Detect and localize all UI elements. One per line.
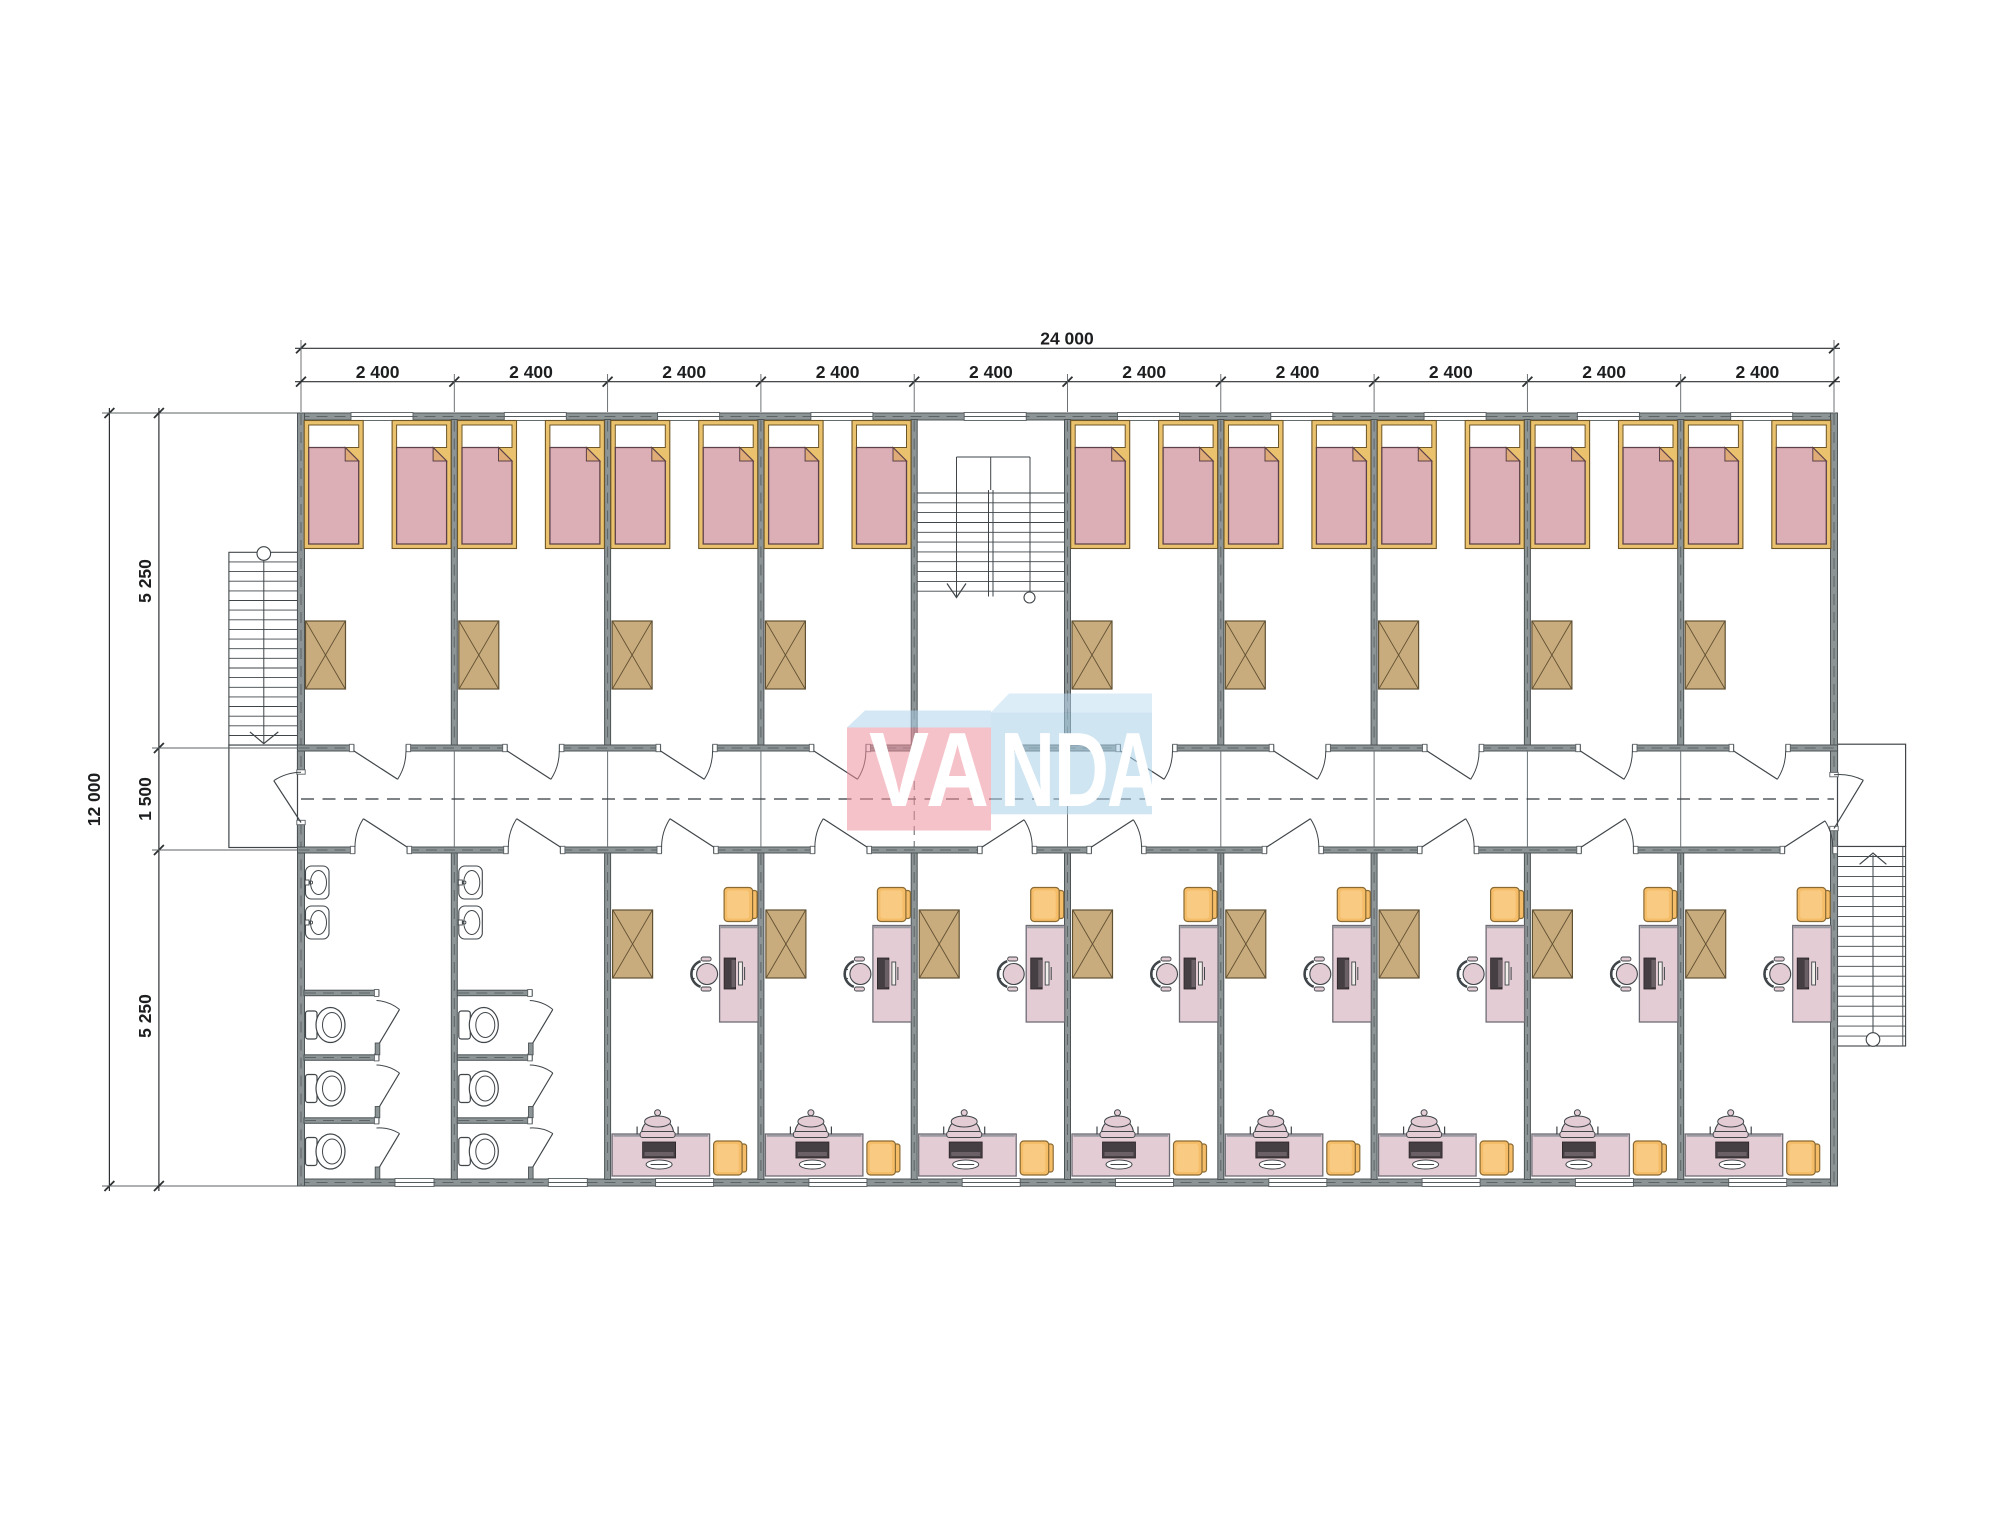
svg-text:2 400: 2 400 [1429, 362, 1473, 382]
svg-text:2 400: 2 400 [1276, 362, 1320, 382]
svg-text:D: D [1054, 711, 1109, 829]
svg-text:2 400: 2 400 [509, 362, 553, 382]
svg-text:2 400: 2 400 [1582, 362, 1626, 382]
svg-text:N: N [1000, 711, 1055, 829]
svg-text:5 250: 5 250 [135, 994, 155, 1038]
svg-text:5 250: 5 250 [135, 559, 155, 603]
svg-text:12 000: 12 000 [84, 772, 104, 826]
svg-text:24 000: 24 000 [1040, 329, 1094, 349]
svg-text:A: A [1107, 711, 1159, 829]
svg-text:2 400: 2 400 [1122, 362, 1166, 382]
svg-text:2 400: 2 400 [1736, 362, 1780, 382]
svg-text:2 400: 2 400 [662, 362, 706, 382]
svg-text:2 400: 2 400 [816, 362, 860, 382]
svg-text:2 400: 2 400 [356, 362, 400, 382]
svg-text:1 500: 1 500 [135, 777, 155, 821]
svg-text:2 400: 2 400 [969, 362, 1013, 382]
svg-text:V: V [869, 711, 929, 829]
svg-text:A: A [926, 711, 989, 829]
